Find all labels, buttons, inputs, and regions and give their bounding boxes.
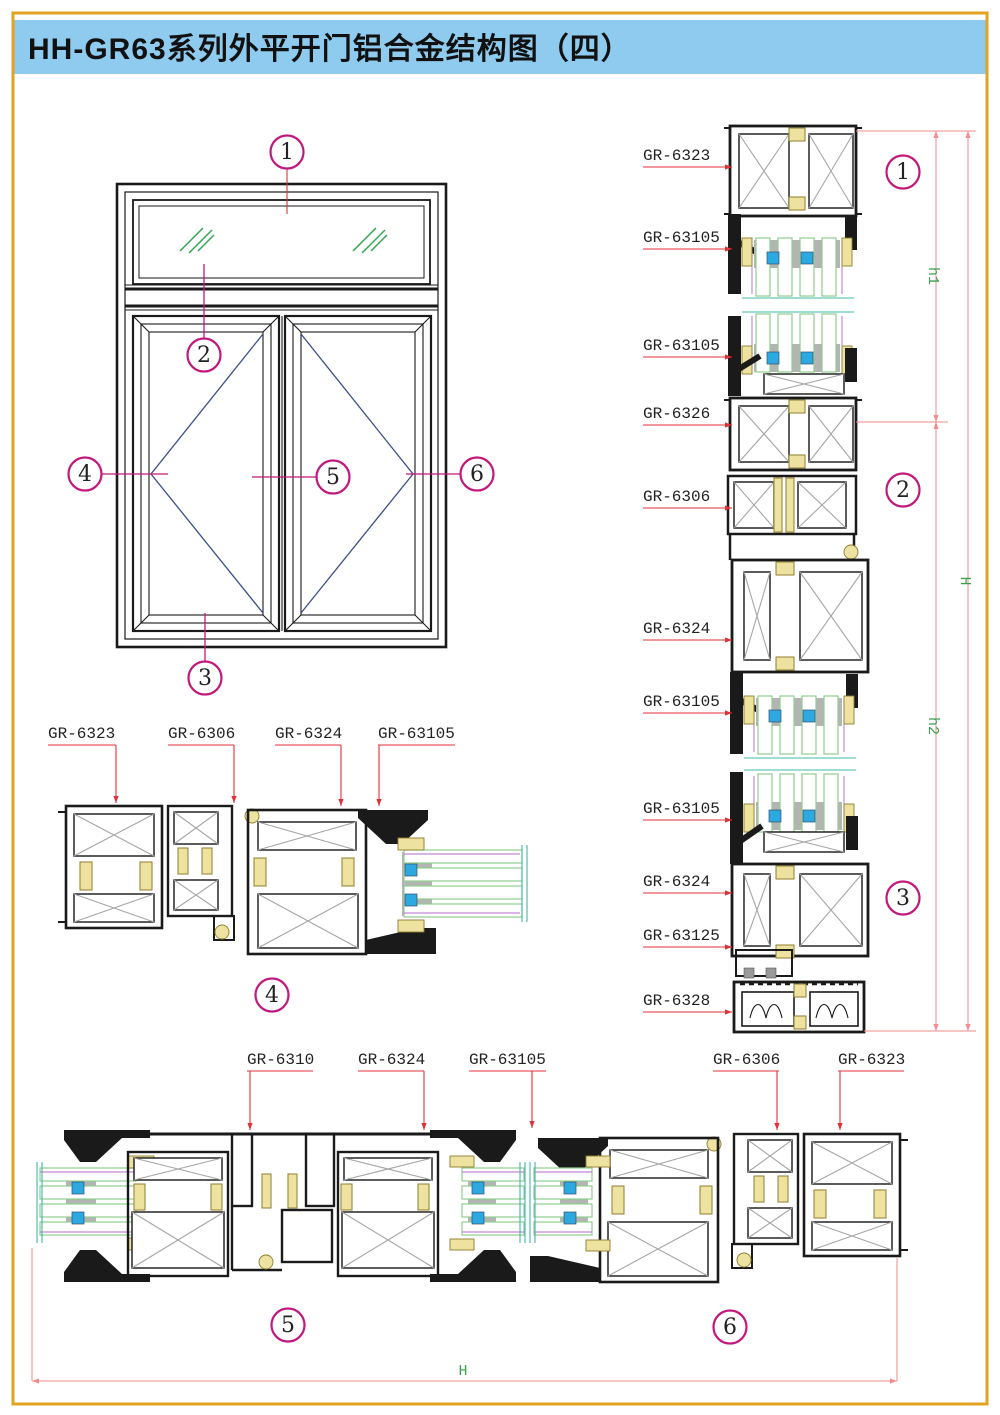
glass-hatch-icon xyxy=(180,228,387,253)
elevation-view: 1 2 3 4 5 6 xyxy=(69,136,494,695)
profile-label: GR-6324 xyxy=(643,620,710,638)
svg-text:3: 3 xyxy=(896,886,910,911)
svg-text:6: 6 xyxy=(470,462,484,487)
profile-label: GR-6323 xyxy=(643,147,710,165)
profile-labels-d5: GR-6310 GR-6324 GR-63105 xyxy=(247,1051,546,1130)
callout-3-elevation: 3 xyxy=(189,662,222,695)
svg-text:2: 2 xyxy=(896,478,910,503)
transom-panel xyxy=(133,200,430,284)
detail-6-glass xyxy=(530,1156,610,1251)
callout-1-elevation: 1 xyxy=(271,136,304,169)
callout-3-section: 3 xyxy=(887,882,920,915)
roller-gasket-icon xyxy=(259,1255,273,1269)
profile-label: GR-6328 xyxy=(643,992,710,1010)
callout-6-detail: 6 xyxy=(714,1311,747,1344)
profile-label: GR-63105 xyxy=(643,693,720,711)
profile-label: GR-6323 xyxy=(48,725,115,743)
callout-1-section: 1 xyxy=(887,156,920,189)
callout-6-elevation: 6 xyxy=(461,458,494,491)
svg-text:4: 4 xyxy=(265,983,279,1008)
detail-4-glass xyxy=(398,838,527,932)
dim-label-h2: h2 xyxy=(924,717,941,735)
profile-label: GR-6326 xyxy=(643,405,710,423)
roller-gasket-icon xyxy=(844,545,858,559)
dim-label-h1: h1 xyxy=(924,267,941,285)
callout-4-elevation: 4 xyxy=(69,458,102,491)
callout-5-elevation: 5 xyxy=(317,461,350,494)
detail-1-section xyxy=(724,126,862,294)
profile-label: GR-63105 xyxy=(643,800,720,818)
glazing-unit-1 xyxy=(742,238,854,312)
drawing-canvas: HH-GR63系列外平开门铝合金结构图（四） xyxy=(0,0,1000,1415)
roller-gasket-icon xyxy=(215,925,229,939)
profile-label: GR-63105 xyxy=(469,1051,546,1069)
detail-4-section: GR-6323 GR-6306 GR-6324 GR-63105 4 xyxy=(48,725,527,1012)
profile-label: GR-6310 xyxy=(247,1051,314,1069)
callout-2-section: 2 xyxy=(887,474,920,507)
detail-6-section: GR-6306 GR-6323 6 xyxy=(530,1051,908,1344)
profile-label: GR-63105 xyxy=(643,337,720,355)
mullion-gr6310 xyxy=(232,1134,334,1270)
profile-label: GR-63125 xyxy=(643,927,720,945)
profile-label: GR-6324 xyxy=(358,1051,425,1069)
svg-text:3: 3 xyxy=(198,666,212,691)
profile-label: GR-63105 xyxy=(643,229,720,247)
profile-labels-d4: GR-6323 GR-6306 GR-6324 GR-63105 xyxy=(48,725,455,806)
svg-text:2: 2 xyxy=(197,343,211,368)
svg-text:1: 1 xyxy=(280,140,294,165)
svg-text:6: 6 xyxy=(723,1315,737,1340)
profile-labels-d6: GR-6306 GR-6323 xyxy=(713,1051,905,1130)
detail-5-right-glass xyxy=(450,1156,525,1250)
profile-label: GR-6306 xyxy=(168,725,235,743)
svg-text:1: 1 xyxy=(896,160,910,185)
profile-label: GR-6323 xyxy=(838,1051,905,1069)
detail-4-profile xyxy=(58,806,436,954)
drawing-sheet: HH-GR63系列外平开门铝合金结构图（四） xyxy=(0,0,1000,1415)
callout-5-detail: 5 xyxy=(272,1309,305,1342)
page-title: HH-GR63系列外平开门铝合金结构图（四） xyxy=(28,32,632,66)
profile-labels-right: GR-6323 GR-63105 GR-63105 GR-6326 GR-630… xyxy=(643,147,732,1015)
detail-3-section xyxy=(730,772,868,1032)
profile-label: GR-6324 xyxy=(643,873,710,891)
svg-text:4: 4 xyxy=(78,462,92,487)
callout-2-elevation: 2 xyxy=(188,339,221,372)
profile-label: GR-6306 xyxy=(643,488,710,506)
vertical-section-column: GR-6323 GR-63105 GR-63105 GR-6326 GR-630… xyxy=(643,126,976,1032)
profile-label: GR-6324 xyxy=(275,725,342,743)
dim-label-bottom-H: H xyxy=(458,1363,467,1380)
detail-5-section: GR-6310 GR-6324 GR-63105 5 xyxy=(37,1051,546,1342)
svg-text:5: 5 xyxy=(326,465,340,490)
dim-label-H: H xyxy=(956,576,973,585)
glazing-unit-2 xyxy=(744,696,856,770)
profile-label: GR-6306 xyxy=(713,1051,780,1069)
callout-4-detail: 4 xyxy=(256,979,289,1012)
detail-2-section xyxy=(724,314,868,754)
svg-text:5: 5 xyxy=(281,1313,295,1338)
profile-label: GR-63105 xyxy=(378,725,455,743)
